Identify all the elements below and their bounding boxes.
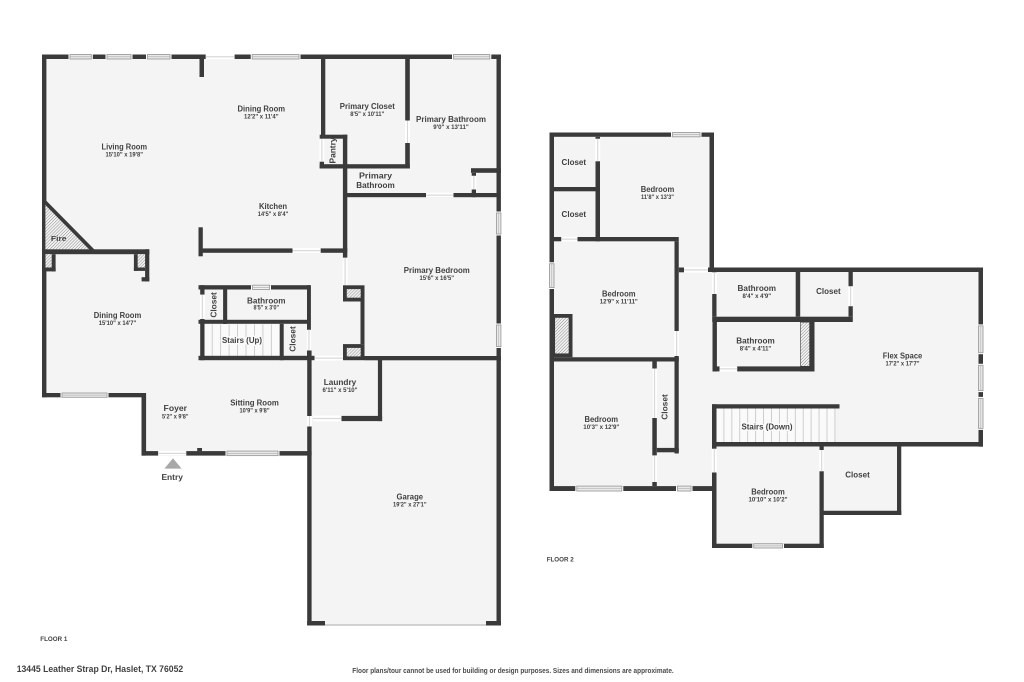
svg-text:Closet: Closet: [845, 469, 870, 479]
svg-text:Closet: Closet: [659, 394, 669, 420]
svg-text:15'10" x 14'7": 15'10" x 14'7": [99, 320, 137, 327]
svg-text:5'2" x 9'8": 5'2" x 9'8": [162, 413, 189, 420]
svg-text:Bathroom: Bathroom: [356, 180, 395, 190]
svg-text:6'11" x 5'10": 6'11" x 5'10": [323, 387, 358, 394]
svg-text:Closet: Closet: [562, 157, 587, 167]
svg-text:Stairs (Down): Stairs (Down): [742, 421, 793, 431]
svg-text:9'0" x 13'11": 9'0" x 13'11": [433, 124, 469, 131]
svg-text:Closet: Closet: [208, 292, 218, 318]
svg-text:Bedroom: Bedroom: [641, 184, 675, 194]
svg-text:Sitting Room: Sitting Room: [230, 398, 279, 408]
svg-text:10'10" x 10'2": 10'10" x 10'2": [749, 497, 788, 504]
svg-text:Primary Bathroom: Primary Bathroom: [416, 114, 486, 124]
svg-text:Kitchen: Kitchen: [259, 201, 287, 211]
svg-text:Living Room: Living Room: [102, 142, 148, 152]
svg-text:8'5" x 10'11": 8'5" x 10'11": [350, 111, 384, 118]
svg-text:19'2" x 27'1": 19'2" x 27'1": [393, 502, 427, 509]
svg-text:Primary Bedroom: Primary Bedroom: [404, 265, 470, 275]
svg-text:Stairs (Up): Stairs (Up): [222, 335, 262, 345]
svg-text:14'5" x 8'4": 14'5" x 8'4": [258, 211, 289, 218]
svg-text:Laundry: Laundry: [324, 377, 357, 387]
svg-text:Dining Room: Dining Room: [94, 310, 142, 320]
svg-text:17'2" x 17'7": 17'2" x 17'7": [886, 361, 920, 368]
svg-text:15'10" x 19'8": 15'10" x 19'8": [106, 152, 144, 159]
svg-text:Entry: Entry: [161, 472, 183, 482]
svg-text:Foyer: Foyer: [164, 403, 188, 413]
svg-text:Bathroom: Bathroom: [738, 283, 777, 293]
svg-text:13445 Leather Strap Dr, Haslet: 13445 Leather Strap Dr, Haslet, TX 76052: [17, 664, 184, 674]
svg-text:Bedroom: Bedroom: [585, 414, 619, 424]
svg-text:8'5" x 3'0": 8'5" x 3'0": [254, 304, 280, 311]
svg-text:Primary Closet: Primary Closet: [340, 101, 395, 111]
svg-text:Primary: Primary: [359, 171, 392, 181]
svg-text:Floor plans/tour cannot be use: Floor plans/tour cannot be used for buil…: [352, 666, 673, 675]
svg-text:8'4" x 4'11": 8'4" x 4'11": [740, 345, 772, 352]
svg-text:8'4" x 4'9": 8'4" x 4'9": [743, 293, 772, 300]
svg-text:12'2" x 11'4": 12'2" x 11'4": [244, 114, 279, 121]
svg-text:Dining Room: Dining Room: [238, 104, 286, 114]
svg-text:Closet: Closet: [562, 209, 587, 219]
svg-text:Bedroom: Bedroom: [751, 486, 785, 496]
svg-text:Fire: Fire: [51, 234, 67, 243]
svg-text:10'3" x 12'9": 10'3" x 12'9": [583, 424, 619, 431]
svg-text:Closet: Closet: [288, 326, 298, 352]
svg-text:FLOOR 2: FLOOR 2: [547, 556, 574, 563]
svg-text:11'8" x 13'3": 11'8" x 13'3": [641, 194, 674, 201]
svg-text:10'9" x 9'8": 10'9" x 9'8": [240, 408, 270, 415]
svg-text:Flex Space: Flex Space: [883, 351, 923, 361]
svg-text:FLOOR 1: FLOOR 1: [40, 636, 67, 643]
svg-text:Closet: Closet: [816, 286, 841, 296]
svg-text:Garage: Garage: [397, 491, 424, 501]
svg-text:15'6" x 16'5": 15'6" x 16'5": [420, 275, 455, 282]
svg-text:Bathroom: Bathroom: [736, 336, 775, 346]
svg-text:Bedroom: Bedroom: [602, 288, 636, 298]
svg-text:Pantry: Pantry: [327, 137, 337, 163]
svg-text:12'9" x 11'11": 12'9" x 11'11": [600, 299, 638, 306]
